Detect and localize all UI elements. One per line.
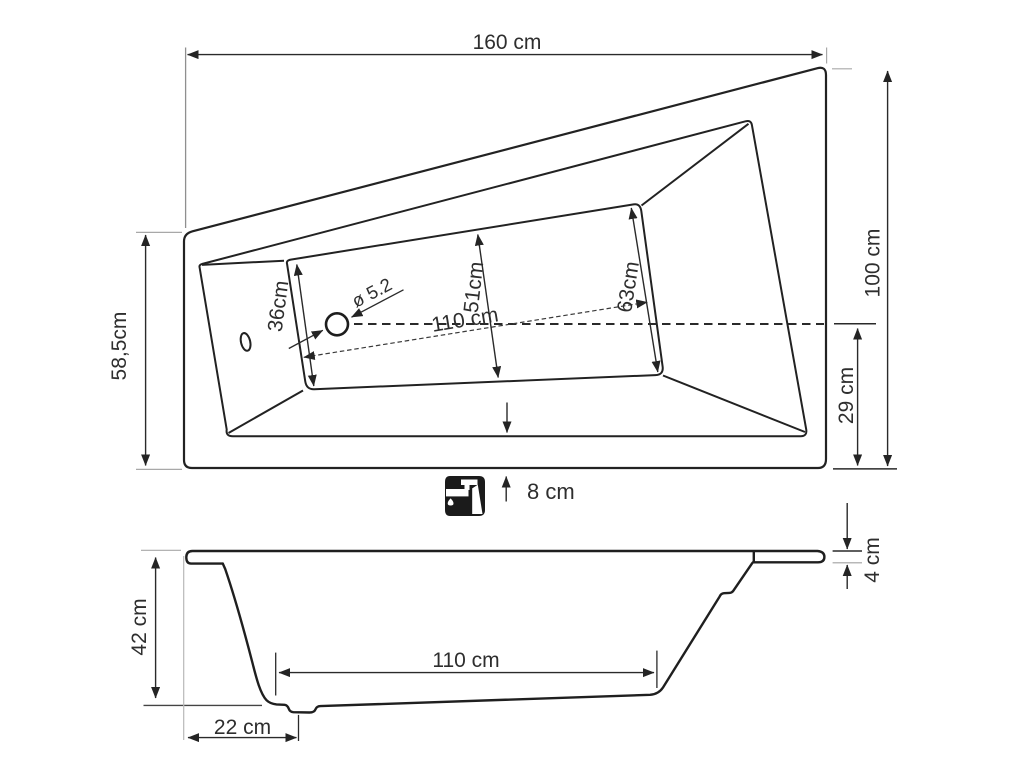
svg-text:36cm: 36cm <box>264 279 294 333</box>
svg-text:29 cm: 29 cm <box>835 367 858 424</box>
svg-text:42 cm: 42 cm <box>128 598 151 655</box>
svg-text:8 cm: 8 cm <box>527 479 575 504</box>
svg-text:160 cm: 160 cm <box>473 31 542 54</box>
svg-text:4 cm: 4 cm <box>861 537 884 583</box>
svg-text:22 cm: 22 cm <box>214 716 271 739</box>
svg-text:110 cm: 110 cm <box>432 649 499 672</box>
svg-text:100 cm: 100 cm <box>862 229 885 298</box>
svg-text:58,5cm: 58,5cm <box>108 312 131 381</box>
svg-text:63cm: 63cm <box>613 260 644 314</box>
